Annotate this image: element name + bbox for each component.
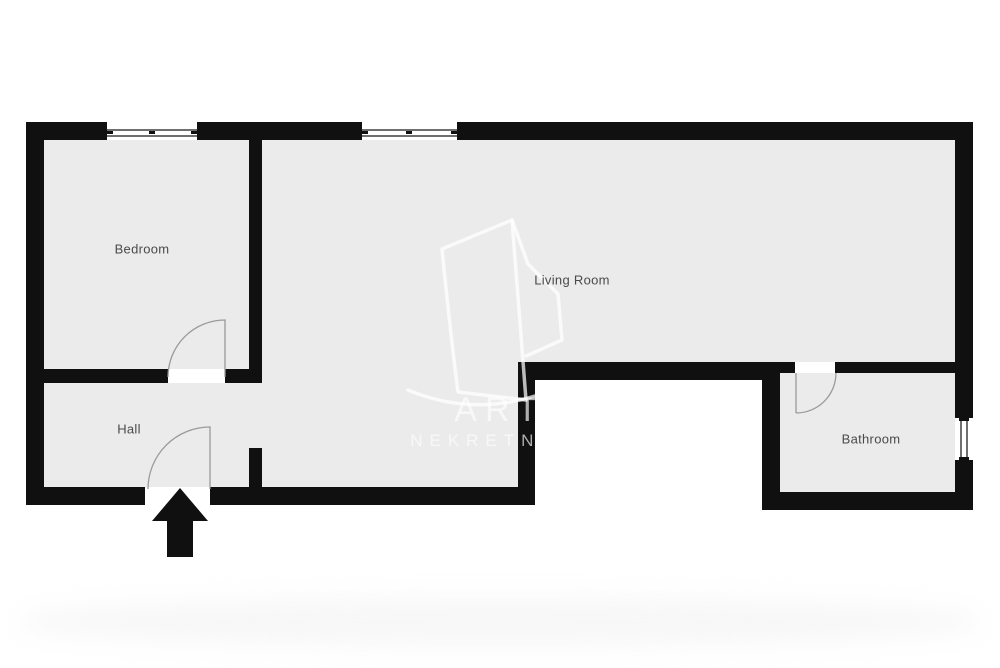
bathroom-label: Bathroom: [842, 432, 901, 447]
wall-divider-bedroom-living: [249, 140, 262, 383]
wall-bathroom-bottom: [762, 492, 973, 510]
hall-label: Hall: [117, 422, 141, 437]
wall-notch-top: [518, 362, 780, 380]
entrance-arrow-icon: [152, 488, 208, 557]
wall-divider-bedroom-hall-left: [44, 369, 168, 383]
floor-plan: Bedroom Hall Living Room Bathroom ART NE…: [0, 0, 1000, 668]
wall-divider-hall-living: [249, 448, 262, 489]
bottom-shadow: [20, 598, 980, 646]
living-room-window: [362, 122, 457, 140]
living-room-label: Living Room: [534, 273, 610, 288]
living-room-floor-upper: [262, 140, 955, 362]
bathroom-window: [955, 418, 973, 460]
wall-bottom-hall: [26, 487, 145, 505]
bedroom-window: [107, 122, 197, 140]
wall-bathroom-left: [762, 362, 780, 510]
wall-divider-bedroom-hall-right: [225, 369, 262, 383]
bedroom-label: Bedroom: [115, 242, 170, 257]
living-room-floor-lower: [262, 362, 535, 487]
wall-left: [26, 122, 44, 505]
hall-floor: [44, 383, 262, 487]
wall-top-middle: [197, 122, 362, 140]
wall-bathroom-top: [835, 362, 955, 373]
wall-bathroom-top-stub: [780, 362, 795, 373]
wall-top-right: [457, 122, 973, 140]
wall-notch-left: [518, 362, 535, 505]
wall-bottom-living: [210, 487, 535, 505]
wall-right-upper: [955, 122, 973, 418]
